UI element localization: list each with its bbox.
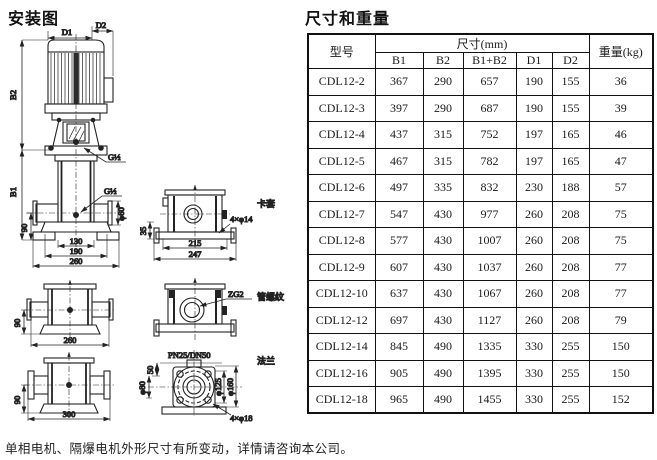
ferrule-label: 卡套 bbox=[257, 198, 275, 209]
model-cell: CDL12-9 bbox=[308, 254, 375, 281]
dim-cell: 208 bbox=[552, 228, 589, 255]
ferrule-dim-247: 247 bbox=[189, 249, 202, 259]
dim-cell: 255 bbox=[552, 334, 589, 361]
dim-cell: 260 bbox=[516, 201, 552, 228]
footnote: 单相电机、隔爆电机外形尺寸有所变动，详情请咨询本公司。 bbox=[5, 438, 353, 457]
dim-cell: 47 bbox=[589, 148, 653, 175]
col-header-size-group: 尺寸(mm) bbox=[375, 34, 589, 53]
dimensions-title: 尺寸和重量 bbox=[305, 5, 390, 29]
model-cell: CDL12-12 bbox=[308, 307, 375, 334]
dim-label-130: 130 bbox=[70, 236, 83, 246]
flange-dim-50: 50 bbox=[145, 366, 155, 375]
table-row: CDL12-754743097726020875 bbox=[308, 201, 653, 228]
dim-cell: 490 bbox=[423, 334, 463, 361]
dim-cell: 36 bbox=[589, 69, 653, 96]
installation-drawing: D1 D2 B2 B1 90 φ60 130 190 260 G½ G½ bbox=[0, 0, 310, 440]
dim-cell: 832 bbox=[463, 175, 516, 202]
dim-cell: 315 bbox=[423, 122, 463, 149]
dim-cell: 39 bbox=[589, 95, 653, 122]
ferrule-dim-35: 35 bbox=[138, 227, 148, 236]
dim-cell: 467 bbox=[375, 148, 423, 175]
ferrule-holes-label: 4×φ14 bbox=[230, 214, 253, 224]
model-cell: CDL12-3 bbox=[308, 95, 375, 122]
dim-cell: 188 bbox=[552, 175, 589, 202]
dim-cell: 330 bbox=[516, 360, 552, 387]
col-header-b1: B1 bbox=[375, 53, 423, 69]
col-header-b2: B2 bbox=[423, 53, 463, 69]
dim-cell: 367 bbox=[375, 69, 423, 96]
flange-holes-label: 4×φ18 bbox=[230, 413, 252, 423]
dim-cell: 497 bbox=[375, 175, 423, 202]
dim-cell: 208 bbox=[552, 281, 589, 308]
table-row: CDL12-546731578219716547 bbox=[308, 148, 653, 175]
dim-cell: 637 bbox=[375, 281, 423, 308]
dim-label-b1: B1 bbox=[8, 187, 18, 197]
model-cell: CDL12-18 bbox=[308, 387, 375, 414]
dim-cell: 77 bbox=[589, 254, 653, 281]
table-row: CDL12-8577430100726020875 bbox=[308, 228, 653, 255]
dim-cell: 197 bbox=[516, 148, 552, 175]
flange-dim-dia80: φ80 bbox=[137, 381, 147, 394]
dim-cell: 77 bbox=[589, 281, 653, 308]
table-body: CDL12-236729065719015536CDL12-3397290687… bbox=[308, 69, 653, 414]
table-row: CDL12-10637430106726020877 bbox=[308, 281, 653, 308]
model-cell: CDL12-7 bbox=[308, 201, 375, 228]
dim-cell: 330 bbox=[516, 387, 552, 414]
dim-cell: 397 bbox=[375, 95, 423, 122]
ferrule-dim-215: 215 bbox=[189, 238, 202, 248]
flange-drawing: PN25/DN50 50 φ80 φ125 φ160 4×φ18 法兰 bbox=[137, 350, 275, 423]
flange-dim-dia125: φ125 bbox=[213, 378, 223, 396]
threaded-side-dim-90: 90 bbox=[12, 319, 22, 328]
dim-cell: 577 bbox=[375, 228, 423, 255]
dim-cell: 208 bbox=[552, 254, 589, 281]
flanged-side-dim-90: 90 bbox=[12, 396, 22, 405]
dim-cell: 255 bbox=[552, 387, 589, 414]
dim-cell: 290 bbox=[423, 95, 463, 122]
model-cell: CDL12-5 bbox=[308, 148, 375, 175]
table-row: CDL12-189654901455330255152 bbox=[308, 387, 653, 414]
ferrule-drawing: 35 215 247 4×φ14 卡套 bbox=[138, 185, 275, 261]
dim-cell: 75 bbox=[589, 228, 653, 255]
table-row: CDL12-12697430112726020879 bbox=[308, 307, 653, 334]
dim-cell: 335 bbox=[423, 175, 463, 202]
dim-cell: 965 bbox=[375, 387, 423, 414]
dim-cell: 1335 bbox=[463, 334, 516, 361]
col-header-weight: 重量(kg) bbox=[589, 34, 653, 69]
g-half-lower-label: G½ bbox=[104, 186, 117, 196]
dim-cell: 57 bbox=[589, 175, 653, 202]
flange-spec-label: PN25/DN50 bbox=[168, 350, 211, 360]
dim-cell: 782 bbox=[463, 148, 516, 175]
dim-label-dia60: φ60 bbox=[116, 207, 126, 220]
dim-cell: 547 bbox=[375, 201, 423, 228]
dim-cell: 430 bbox=[423, 307, 463, 334]
model-cell: CDL12-10 bbox=[308, 281, 375, 308]
dim-cell: 165 bbox=[552, 122, 589, 149]
dim-cell: 430 bbox=[423, 201, 463, 228]
model-cell: CDL12-4 bbox=[308, 122, 375, 149]
dim-label-190: 190 bbox=[70, 246, 83, 256]
dim-cell: 1067 bbox=[463, 281, 516, 308]
dim-cell: 697 bbox=[375, 307, 423, 334]
dim-cell: 437 bbox=[375, 122, 423, 149]
dim-label-d1: D1 bbox=[62, 27, 72, 37]
dim-cell: 75 bbox=[589, 201, 653, 228]
table-row: CDL12-443731575219716546 bbox=[308, 122, 653, 149]
dim-label-260: 260 bbox=[70, 256, 83, 266]
dim-cell: 290 bbox=[423, 69, 463, 96]
dim-cell: 165 bbox=[552, 148, 589, 175]
dim-cell: 687 bbox=[463, 95, 516, 122]
dim-cell: 197 bbox=[516, 122, 552, 149]
dim-cell: 430 bbox=[423, 228, 463, 255]
flanged-side-drawing: 90 300 bbox=[12, 352, 116, 421]
table-row: CDL12-169054901395330255150 bbox=[308, 360, 653, 387]
dim-cell: 150 bbox=[589, 360, 653, 387]
dim-cell: 230 bbox=[516, 175, 552, 202]
table-row: CDL12-649733583223018857 bbox=[308, 175, 653, 202]
dim-cell: 330 bbox=[516, 334, 552, 361]
col-header-d1: D1 bbox=[516, 53, 552, 69]
dim-cell: 1127 bbox=[463, 307, 516, 334]
flanged-side-dim-300: 300 bbox=[63, 409, 76, 419]
col-header-b1b2: B1+B2 bbox=[463, 53, 516, 69]
dim-cell: 46 bbox=[589, 122, 653, 149]
dim-label-b2: B2 bbox=[8, 90, 18, 100]
dim-cell: 905 bbox=[375, 360, 423, 387]
threaded-side-drawing: 90 260 bbox=[12, 280, 114, 347]
dim-cell: 155 bbox=[552, 69, 589, 96]
dim-cell: 657 bbox=[463, 69, 516, 96]
dim-cell: 315 bbox=[423, 148, 463, 175]
dim-cell: 260 bbox=[516, 307, 552, 334]
g-half-upper-label: G½ bbox=[108, 152, 121, 162]
dimensions-table: 型号 尺寸(mm) 重量(kg) B1 B2 B1+B2 D1 D2 CDL12… bbox=[307, 33, 654, 414]
dim-cell: 1037 bbox=[463, 254, 516, 281]
dim-cell: 260 bbox=[516, 254, 552, 281]
dim-label-90: 90 bbox=[19, 224, 29, 233]
dim-cell: 79 bbox=[589, 307, 653, 334]
model-cell: CDL12-6 bbox=[308, 175, 375, 202]
model-cell: CDL12-8 bbox=[308, 228, 375, 255]
dim-cell: 1395 bbox=[463, 360, 516, 387]
model-cell: CDL12-16 bbox=[308, 360, 375, 387]
table-row: CDL12-236729065719015536 bbox=[308, 69, 653, 96]
table-row: CDL12-339729068719015539 bbox=[308, 95, 653, 122]
dim-cell: 152 bbox=[589, 387, 653, 414]
dim-cell: 255 bbox=[552, 360, 589, 387]
dim-cell: 845 bbox=[375, 334, 423, 361]
pipe-thread-label: 管螺纹 bbox=[257, 291, 284, 302]
dim-cell: 490 bbox=[423, 360, 463, 387]
dim-cell: 430 bbox=[423, 254, 463, 281]
zg2-label: ZG2 bbox=[228, 289, 244, 299]
main-assembly-drawing: D1 D2 B2 B1 90 φ60 130 190 260 G½ G½ bbox=[8, 20, 126, 268]
dim-cell: 208 bbox=[552, 307, 589, 334]
table-row: CDL12-9607430103726020877 bbox=[308, 254, 653, 281]
dim-cell: 208 bbox=[552, 201, 589, 228]
dim-cell: 1007 bbox=[463, 228, 516, 255]
dim-cell: 490 bbox=[423, 387, 463, 414]
model-cell: CDL12-2 bbox=[308, 69, 375, 96]
dim-cell: 150 bbox=[589, 334, 653, 361]
dim-cell: 190 bbox=[516, 95, 552, 122]
flange-dim-dia160: φ160 bbox=[225, 378, 235, 396]
dim-cell: 155 bbox=[552, 95, 589, 122]
dim-cell: 1455 bbox=[463, 387, 516, 414]
threaded-side-dim-260: 260 bbox=[64, 335, 77, 345]
dim-cell: 607 bbox=[375, 254, 423, 281]
col-header-d2: D2 bbox=[552, 53, 589, 69]
table-row: CDL12-148454901335330255150 bbox=[308, 334, 653, 361]
dim-cell: 430 bbox=[423, 281, 463, 308]
dim-cell: 260 bbox=[516, 228, 552, 255]
pipe-thread-drawing: ZG2 管螺纹 bbox=[154, 278, 284, 340]
dim-cell: 977 bbox=[463, 201, 516, 228]
dim-cell: 260 bbox=[516, 281, 552, 308]
col-header-model: 型号 bbox=[308, 34, 375, 69]
dim-label-d2: D2 bbox=[96, 20, 106, 30]
dim-cell: 752 bbox=[463, 122, 516, 149]
model-cell: CDL12-14 bbox=[308, 334, 375, 361]
flange-label: 法兰 bbox=[257, 355, 275, 366]
dim-cell: 190 bbox=[516, 69, 552, 96]
